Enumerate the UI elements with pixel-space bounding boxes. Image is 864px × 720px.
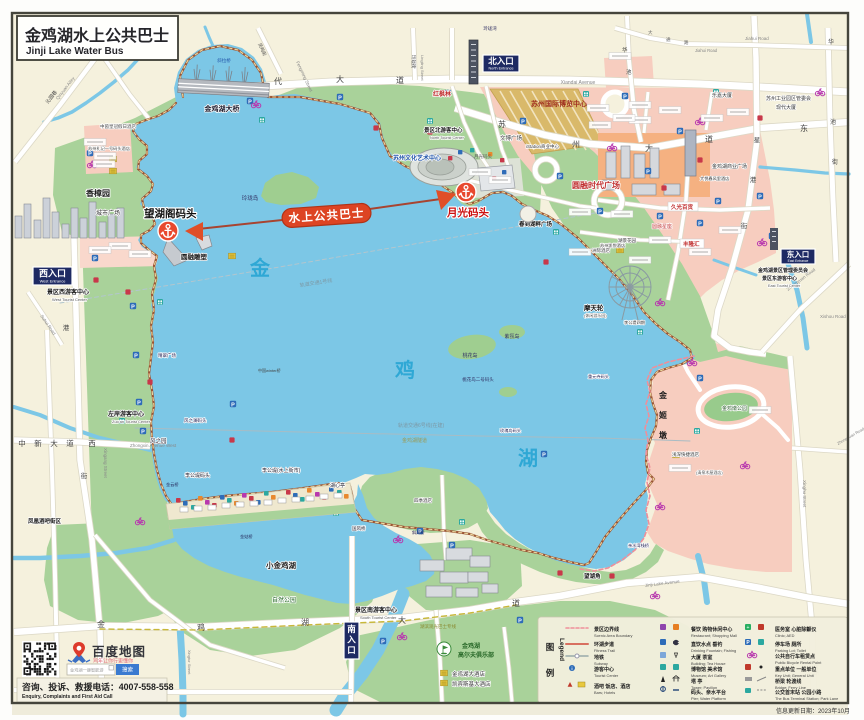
svg-text:红枫林: 红枫林 [433, 90, 451, 98]
svg-text:玲珑岛: 玲珑岛 [242, 194, 259, 202]
svg-text:大厦 茶室: 大厦 茶室 [691, 654, 712, 661]
svg-text:P: P [521, 119, 525, 125]
svg-text:苏州文化艺术中心: 苏州文化艺术中心 [393, 154, 441, 162]
svg-text:金姑桥: 金姑桥 [240, 533, 253, 540]
svg-text:鸡: 鸡 [394, 358, 415, 382]
svg-text:咨询、投诉、救援电话：4007-558-558: 咨询、投诉、救援电话：4007-558-558 [22, 681, 174, 692]
svg-text:Legend: Legend [558, 638, 565, 661]
svg-text:Jiahui Road: Jiahui Road [745, 36, 769, 41]
svg-text:Zuo'an Tourist Center: Zuo'an Tourist Center [112, 419, 151, 424]
svg-text:月光码头: 月光码头 [474, 153, 492, 160]
svg-text:P: P [658, 214, 662, 220]
svg-text:公交首末站 公园小路: 公交首末站 公园小路 [775, 689, 822, 696]
svg-text:湖: 湖 [301, 618, 309, 627]
svg-text:塔 亭: 塔 亭 [691, 678, 702, 685]
svg-text:文博广场: 文博广场 [500, 134, 523, 142]
svg-text:Bars; Hotels: Bars; Hotels [594, 690, 615, 695]
svg-text:李公堤码头: 李公堤码头 [185, 472, 210, 479]
svg-text:通: 通 [666, 36, 671, 43]
svg-text:P: P [678, 129, 682, 135]
svg-text:游客中心: 游客中心 [594, 666, 614, 673]
svg-text:P: P [518, 618, 522, 624]
svg-text:Xinghu Street: Xinghu Street [802, 480, 807, 508]
svg-text:代: 代 [274, 76, 282, 86]
svg-text:景区南游客中心: 景区南游客中心 [354, 606, 397, 614]
svg-text:P: P [381, 639, 385, 645]
svg-text:信息更新日期：2023年10月: 信息更新日期：2023年10月 [776, 707, 850, 715]
svg-text:斜拉桥: 斜拉桥 [217, 57, 231, 64]
svg-text:P: P [338, 95, 342, 101]
svg-text:香樟园: 香樟园 [85, 188, 110, 198]
svg-text:地铁: 地铁 [594, 654, 605, 661]
svg-text:湖心亭: 湖心亭 [330, 482, 345, 489]
svg-text:P: P [758, 194, 762, 200]
svg-text:玫瑰岛码头: 玫瑰岛码头 [500, 427, 521, 434]
svg-text:高尔夫俱乐部: 高尔夫俱乐部 [458, 651, 494, 659]
svg-text:湖滨观光巴士专线: 湖滨观光巴士专线 [420, 623, 456, 630]
svg-text:码头、亲水平台: 码头、亲水平台 [691, 689, 726, 696]
svg-text:桥梁 轮渡线: 桥梁 轮渡线 [775, 678, 801, 685]
svg-text:P: P [646, 169, 650, 175]
svg-text:乐嘉大厦: 乐嘉大厦 [712, 92, 732, 99]
svg-text:港: 港 [63, 323, 70, 332]
svg-text:丰隆汇: 丰隆汇 [683, 240, 700, 248]
svg-text:Enquiry, Complaints and First: Enquiry, Complaints and First Aid Call [22, 694, 113, 700]
svg-text:公共自行车租赁点: 公共自行车租赁点 [775, 653, 815, 660]
svg-text:金鸡湖大酒店: 金鸡湖大酒店 [452, 670, 486, 678]
svg-text:大: 大 [336, 74, 344, 84]
svg-text:西: 西 [88, 439, 96, 448]
svg-text:重点单位 一般单位: 重点单位 一般单位 [775, 666, 816, 673]
svg-text:望湖阁码头: 望湖阁码头 [144, 207, 197, 220]
svg-text:苏州工业园区管委会: 苏州工业园区管委会 [766, 95, 811, 102]
svg-text:星: 星 [754, 136, 761, 144]
svg-text:鸡年让你行更懂你: 鸡年让你行更懂你 [93, 658, 133, 665]
svg-text:洲际酒店: 洲际酒店 [592, 247, 610, 254]
svg-text:South Tourist Center: South Tourist Center [360, 615, 397, 620]
svg-text:池: 池 [830, 118, 836, 126]
svg-text:大悦春风里酒店: 大悦春风里酒店 [700, 175, 729, 182]
svg-text:凤凰酒吧街区: 凤凰酒吧街区 [28, 517, 62, 525]
svg-text:医务室 心脏除颤仪: 医务室 心脏除颤仪 [775, 626, 817, 633]
svg-text:州: 州 [572, 140, 580, 149]
svg-text:道: 道 [66, 438, 74, 448]
svg-text:P: P [450, 543, 454, 549]
svg-text:久光百货: 久光百货 [671, 203, 694, 211]
svg-text:中国winter桥: 中国winter桥 [258, 367, 281, 373]
svg-text:(休闲游乐园): (休闲游乐园) [584, 312, 607, 318]
svg-text:P: P [598, 209, 602, 215]
svg-text:姬: 姬 [658, 410, 667, 420]
svg-text:金: 金 [97, 619, 105, 629]
svg-text:现代大厦: 现代大厦 [776, 104, 796, 111]
svg-text:环湖步道: 环湖步道 [594, 641, 614, 648]
svg-text:Museum; Art Gallery: Museum; Art Gallery [691, 673, 726, 678]
svg-text:轨道交通6号线(在建): 轨道交通6号线(在建) [398, 422, 444, 429]
svg-text:Clinic; AED: Clinic; AED [775, 633, 795, 638]
svg-text:入: 入 [346, 635, 356, 645]
svg-text:浅深快捷酒店: 浅深快捷酒店 [672, 451, 699, 458]
svg-text:Key Unit; General Unit: Key Unit; General Unit [775, 673, 815, 678]
svg-text:P: P [131, 304, 135, 310]
svg-text:自然公园: 自然公园 [272, 596, 296, 604]
svg-text:湖景花园: 湖景花园 [618, 237, 636, 244]
svg-text:国风桥: 国风桥 [352, 525, 366, 532]
svg-text:金鸡湖: 金鸡湖 [461, 642, 480, 650]
svg-text:摩天轮: 摩天轮 [584, 303, 604, 312]
svg-text:小金鸡湖: 小金鸡湖 [266, 560, 296, 570]
svg-text:Xiandai Avenue: Xiandai Avenue [561, 80, 596, 86]
svg-text:搜索: 搜索 [122, 666, 134, 674]
svg-text:Building; Tea House: Building; Tea House [691, 661, 726, 666]
svg-text:Fitness Trail: Fitness Trail [594, 648, 615, 653]
svg-text:(清泉木屋酒店): (清泉木屋酒店) [696, 469, 723, 475]
svg-text:Pier; Water Platform: Pier; Water Platform [691, 696, 726, 701]
svg-text:P: P [623, 94, 627, 100]
svg-text:景区北游客中心: 景区北游客中心 [423, 126, 463, 134]
svg-text:新: 新 [34, 438, 42, 448]
svg-text:李公堤四期: 李公堤四期 [624, 319, 645, 326]
svg-text:大: 大 [50, 438, 58, 448]
svg-text:景区西游客中心: 景区西游客中心 [46, 288, 89, 296]
svg-text:东: 东 [800, 123, 808, 133]
svg-text:北入口: 北入口 [488, 56, 514, 66]
svg-text:东入口: 东入口 [787, 249, 810, 259]
svg-text:图: 图 [546, 642, 555, 652]
svg-text:Tourist Center: Tourist Center [594, 673, 619, 678]
svg-text:道: 道 [705, 134, 713, 144]
svg-text:道: 道 [512, 598, 520, 608]
svg-text:街: 街 [832, 158, 838, 166]
svg-text:博物馆 美术馆: 博物馆 美术馆 [691, 666, 722, 673]
svg-text:城市广场: 城市广场 [96, 209, 120, 217]
svg-text:Subway: Subway [594, 661, 608, 666]
svg-text:The Bus Terminal Station; Park: The Bus Terminal Station; Park Lane [775, 696, 838, 701]
svg-text:金鸡湖一键智能游: 金鸡湖一键智能游 [70, 667, 104, 674]
svg-text:North Entrance: North Entrance [488, 67, 513, 71]
svg-text:P: P [88, 151, 92, 157]
svg-text:苏州国际博览中心: 苏州国际博览中心 [531, 99, 587, 108]
svg-text:P: P [134, 353, 138, 359]
svg-text:李公堤(水上街市): 李公堤(水上街市) [262, 467, 301, 474]
svg-text:iStation商业中心: iStation商业中心 [526, 143, 560, 150]
svg-text:百度地图: 百度地图 [92, 644, 146, 659]
svg-text:路: 路 [684, 39, 689, 46]
svg-text:West Tourist Center: West Tourist Center [52, 297, 88, 302]
svg-text:亲水湾栈桥: 亲水湾栈桥 [628, 542, 650, 549]
svg-text:金云桥: 金云桥 [166, 481, 179, 488]
svg-text:Parking Lot; Toilet: Parking Lot; Toilet [775, 648, 807, 653]
svg-text:金鸡湖大桥: 金鸡湖大桥 [204, 104, 241, 113]
svg-text:鸡: 鸡 [197, 622, 205, 632]
svg-text:大: 大 [648, 29, 653, 36]
svg-text:Drinking Fountain; Fishing: Drinking Fountain; Fishing [691, 648, 736, 653]
svg-text:P: P [698, 221, 702, 227]
svg-text:西入口: 西入口 [39, 269, 66, 279]
svg-text:P: P [716, 199, 720, 205]
svg-text:停车场 厕所: 停车场 厕所 [775, 641, 801, 648]
svg-text:池: 池 [626, 68, 632, 76]
svg-text:街: 街 [741, 221, 748, 230]
svg-text:重元寺码头: 重元寺码头 [588, 373, 609, 380]
svg-text:金: 金 [249, 256, 271, 280]
svg-text:i: i [571, 666, 572, 671]
svg-text:Jiahui Road: Jiahui Road [695, 48, 718, 53]
svg-text:风之园: 风之园 [150, 437, 167, 445]
svg-text:紫氛岛: 紫氛岛 [504, 333, 519, 340]
svg-text:玲珑湾: 玲珑湾 [483, 25, 497, 32]
svg-text:P: P [542, 452, 546, 458]
svg-text:圆融时代广场: 圆融时代广场 [572, 180, 620, 190]
svg-text:月光码头: 月光码头 [446, 206, 489, 219]
svg-text:华: 华 [622, 46, 628, 54]
svg-text:North Tourist Center: North Tourist Center [430, 136, 465, 140]
svg-text:例: 例 [546, 668, 555, 678]
svg-text:P: P [558, 174, 562, 180]
svg-text:P: P [141, 429, 145, 435]
svg-text:Restaurant; Shopping Mall: Restaurant; Shopping Mall [691, 633, 737, 638]
svg-text:苏: 苏 [498, 119, 506, 129]
svg-text:Jinji Lake Water Bus: Jinji Lake Water Bus [26, 46, 124, 57]
svg-text:P: P [698, 376, 702, 382]
svg-text:墩: 墩 [659, 430, 668, 440]
svg-text:景区东游客中心: 景区东游客中心 [762, 275, 797, 282]
svg-text:Lingling Street: Lingling Street [420, 55, 425, 81]
svg-text:酒吧 饭店、酒店: 酒吧 饭店、酒店 [594, 683, 630, 690]
svg-text:圆融星座: 圆融星座 [652, 223, 672, 230]
svg-text:玲珑街: 玲珑街 [410, 55, 417, 69]
svg-text:望湖角: 望湖角 [584, 572, 601, 580]
svg-text:P: P [137, 400, 141, 406]
svg-text:金鸡墩公园: 金鸡墩公园 [722, 405, 747, 412]
svg-text:大: 大 [398, 615, 406, 625]
svg-text:凯宾斯基大酒店: 凯宾斯基大酒店 [452, 680, 491, 688]
svg-text:左岸游客中心: 左岸游客中心 [107, 410, 144, 418]
svg-text:金鸡湖景区管理委员会: 金鸡湖景区管理委员会 [757, 267, 808, 274]
svg-text:斜风桥: 斜风桥 [412, 529, 425, 536]
svg-text:桃花岛: 桃花岛 [462, 352, 477, 359]
svg-text:餐饮 购物休闲中心: 餐饮 购物休闲中心 [690, 626, 732, 633]
svg-text:P: P [93, 256, 97, 262]
svg-text:中茵皇冠假日酒店: 中茵皇冠假日酒店 [100, 123, 136, 130]
svg-text:湖: 湖 [518, 447, 538, 470]
svg-text:中: 中 [18, 438, 26, 448]
svg-text:港: 港 [750, 175, 757, 184]
svg-text:苏州礼记一号码头酒店: 苏州礼记一号码头酒店 [88, 145, 130, 152]
svg-text:华: 华 [828, 38, 834, 46]
svg-text:景区边界线: 景区边界线 [594, 626, 619, 633]
svg-text:Public Bicycle Rental Point: Public Bicycle Rental Point [775, 660, 822, 665]
svg-text:+: + [747, 625, 750, 631]
svg-text:口: 口 [347, 645, 356, 655]
svg-text:P: P [231, 402, 235, 408]
svg-text:四季酒店: 四季酒店 [414, 497, 432, 504]
svg-text:Xingang Street: Xingang Street [103, 448, 108, 479]
svg-text:南: 南 [347, 624, 356, 634]
svg-text:West Entrance: West Entrance [40, 278, 67, 283]
svg-text:桃花岛二号码头: 桃花岛二号码头 [462, 376, 494, 383]
svg-text:Xingtur Street: Xingtur Street [187, 650, 192, 675]
svg-text:East Entrance: East Entrance [788, 259, 809, 263]
svg-text:圆融雕塑: 圆融雕塑 [181, 252, 208, 261]
svg-text:金鸡湖隧道: 金鸡湖隧道 [402, 437, 427, 444]
svg-text:Xishou Road: Xishou Road [820, 314, 846, 319]
svg-text:East Tourist Center: East Tourist Center [768, 284, 801, 288]
svg-text:Scenic Area Boundary: Scenic Area Boundary [594, 633, 633, 638]
svg-text:晴翠广场: 晴翠广场 [158, 352, 176, 359]
svg-text:金: 金 [658, 390, 668, 400]
svg-text:金鸡湖商业广场: 金鸡湖商业广场 [712, 163, 747, 170]
svg-text:直饮水点 垂钓: 直饮水点 垂钓 [691, 641, 722, 648]
svg-text:街: 街 [81, 471, 88, 480]
svg-text:风之澜码头: 风之澜码头 [184, 417, 207, 424]
svg-text:金鸡湖水上公共巴士: 金鸡湖水上公共巴士 [24, 26, 169, 45]
svg-text:道: 道 [396, 75, 404, 85]
